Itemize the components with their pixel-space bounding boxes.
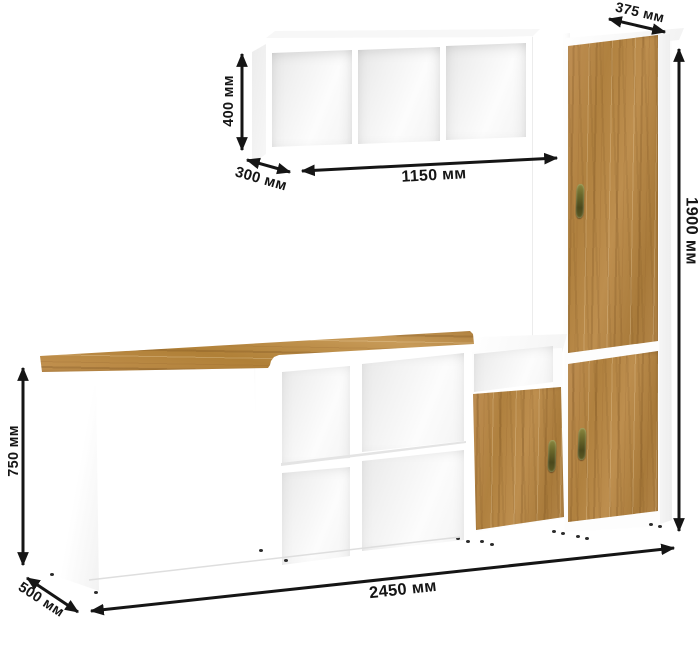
middle-cabinet-door-handle <box>547 440 556 472</box>
furniture-foot <box>490 543 494 546</box>
cubby-cell-bottom-right <box>360 446 466 552</box>
dimension-label-desk-height: 750 мм <box>6 425 22 476</box>
tall-cabinet-lower-door-handle <box>577 428 586 460</box>
furniture-foot <box>94 591 98 594</box>
cubby-cell-top-left <box>280 360 352 466</box>
furniture-foot <box>561 532 565 535</box>
furniture-foot <box>284 559 288 562</box>
furniture-foot <box>50 573 54 576</box>
wall-shelf-left-side <box>252 44 268 164</box>
dimension-label-wall-shelf-width: 1150 мм <box>401 165 467 187</box>
dimension-label-tall-cabinet-depth: 375 мм <box>614 0 666 25</box>
wall-shelf-cell-1 <box>272 49 352 148</box>
wall-shelf-cell-2 <box>358 46 440 145</box>
cubby-cell-bottom-left <box>280 463 352 567</box>
cubby-cell-top-right <box>360 350 466 454</box>
dimension-label-wall-shelf-depth: 300 мм <box>233 163 289 194</box>
desk-left-panel <box>42 364 102 594</box>
furniture-foot <box>649 523 653 526</box>
furniture-foot <box>576 535 580 538</box>
furniture-foot <box>552 530 556 533</box>
furniture-foot <box>658 525 662 528</box>
furniture-foot <box>259 549 263 552</box>
furniture-foot <box>480 540 484 543</box>
furniture-dimension-diagram: 400 мм 300 мм 1150 мм 375 мм 1900 мм 750… <box>0 0 700 653</box>
furniture-foot <box>466 540 470 543</box>
dimension-label-total-width: 2450 мм <box>368 577 437 603</box>
furniture-foot <box>585 537 589 540</box>
furniture-foot <box>456 537 460 540</box>
dimension-label-desk-depth: 500 мм <box>15 579 67 620</box>
dimension-label-tall-cabinet-height: 1900 мм <box>682 197 700 265</box>
tall-cabinet-upper-door-handle <box>575 184 584 218</box>
dimension-label-wall-shelf-height: 400 мм <box>221 75 237 126</box>
wall-shelf-cell-3 <box>446 42 526 141</box>
